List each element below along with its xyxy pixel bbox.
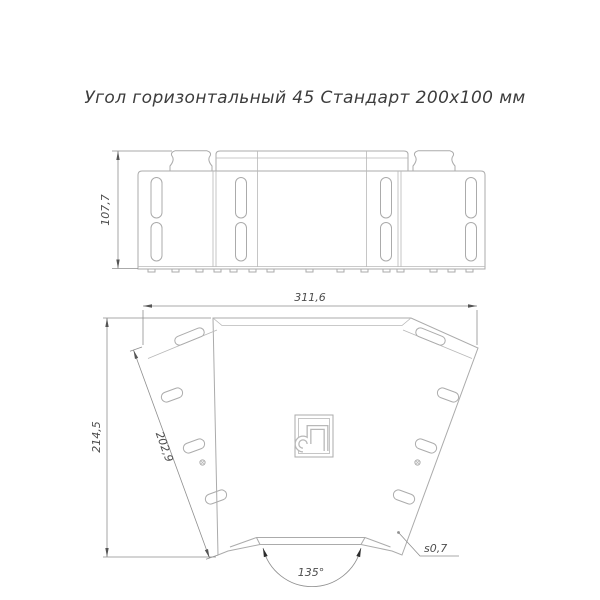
- front-left-hat-tab: [170, 151, 212, 171]
- dim-plan-angle-value: 135°: [298, 566, 325, 579]
- dim-plan-end-width: 202,9: [130, 347, 218, 559]
- plan-right-flank-slots: [392, 387, 460, 506]
- front-middle-band: [216, 151, 408, 171]
- promrukav-logo-icon: [295, 415, 333, 457]
- dim-plan-height: 214,5: [90, 318, 216, 557]
- front-joint-lines: [213, 151, 401, 267]
- drawing-title: Угол горизонтальный 45 Стандарт 200x100 …: [84, 88, 525, 108]
- front-body-outline: [138, 171, 485, 269]
- rivet-mark-left: [200, 460, 205, 465]
- plan-right-corner-slot: [414, 327, 446, 347]
- dim-plan-height-value: 214,5: [90, 421, 103, 453]
- dim-plan-angle: 135°: [261, 547, 363, 586]
- front-slot-holes: [151, 178, 477, 262]
- plan-view: 311,6 214,5 202,9 135° s0,7: [90, 291, 478, 587]
- plan-top-flange-inner: [213, 318, 411, 326]
- plan-left-corner-slot: [173, 327, 205, 347]
- drawing-sheet: Угол горизонтальный 45 Стандарт 200x100 …: [0, 0, 600, 600]
- dim-plan-width-value: 311,6: [294, 291, 326, 304]
- front-view: 107,7: [99, 151, 485, 272]
- front-right-hat-tab: [413, 151, 455, 171]
- dim-plan-end-width-value: 202,9: [153, 430, 176, 464]
- dim-plan-thickness-value: s0,7: [424, 542, 447, 555]
- dim-front-height-value: 107,7: [99, 194, 112, 226]
- technical-drawing: Угол горизонтальный 45 Стандарт 200x100 …: [0, 0, 600, 600]
- rivet-mark-right: [415, 460, 420, 465]
- plan-outline: [213, 318, 478, 555]
- dim-front-height: 107,7: [99, 151, 172, 269]
